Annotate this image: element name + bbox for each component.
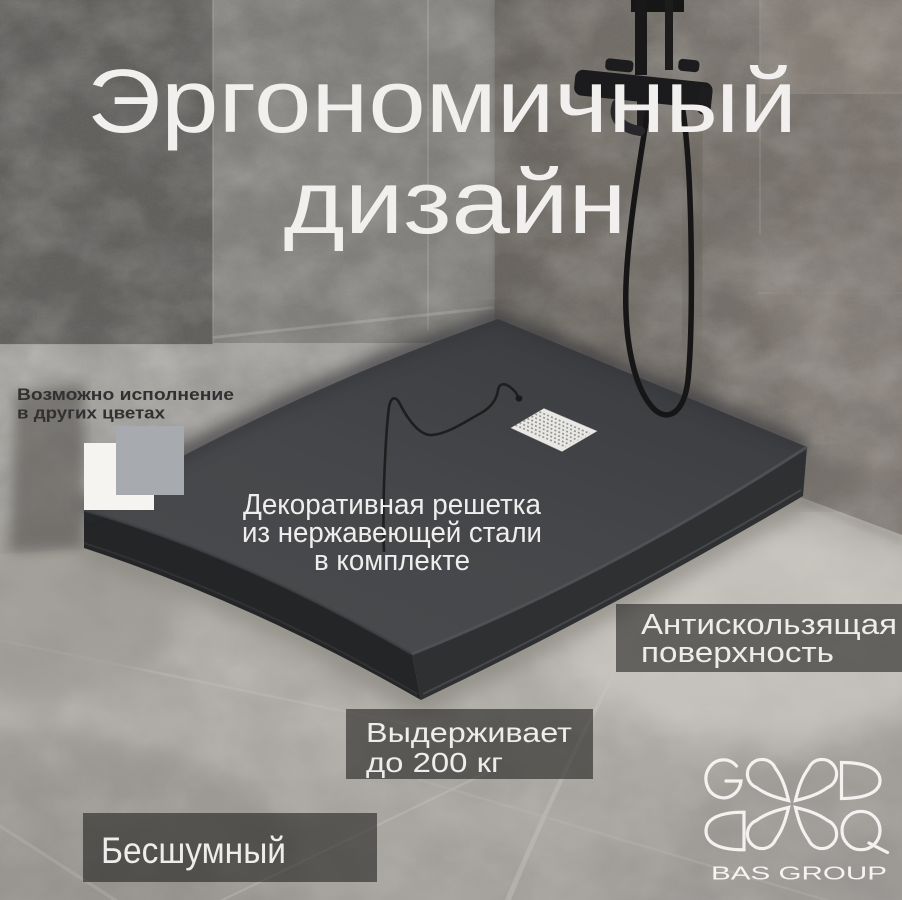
- svg-text:Эргономичный: Эргономичный: [87, 52, 797, 152]
- svg-text:в других цветах: в других цветах: [17, 405, 166, 423]
- svg-text:до 200 кг: до 200 кг: [366, 747, 503, 778]
- svg-text:в комплекте: в комплекте: [314, 545, 470, 577]
- svg-text:дизайн: дизайн: [284, 153, 627, 253]
- svg-text:Возможно исполнение: Возможно исполнение: [17, 386, 234, 404]
- svg-text:Бесшумный: Бесшумный: [101, 830, 286, 871]
- svg-text:Выдерживает: Выдерживает: [366, 717, 572, 748]
- svg-text:поверхность: поверхность: [641, 637, 834, 669]
- svg-text:BAS GROUP: BAS GROUP: [711, 863, 887, 884]
